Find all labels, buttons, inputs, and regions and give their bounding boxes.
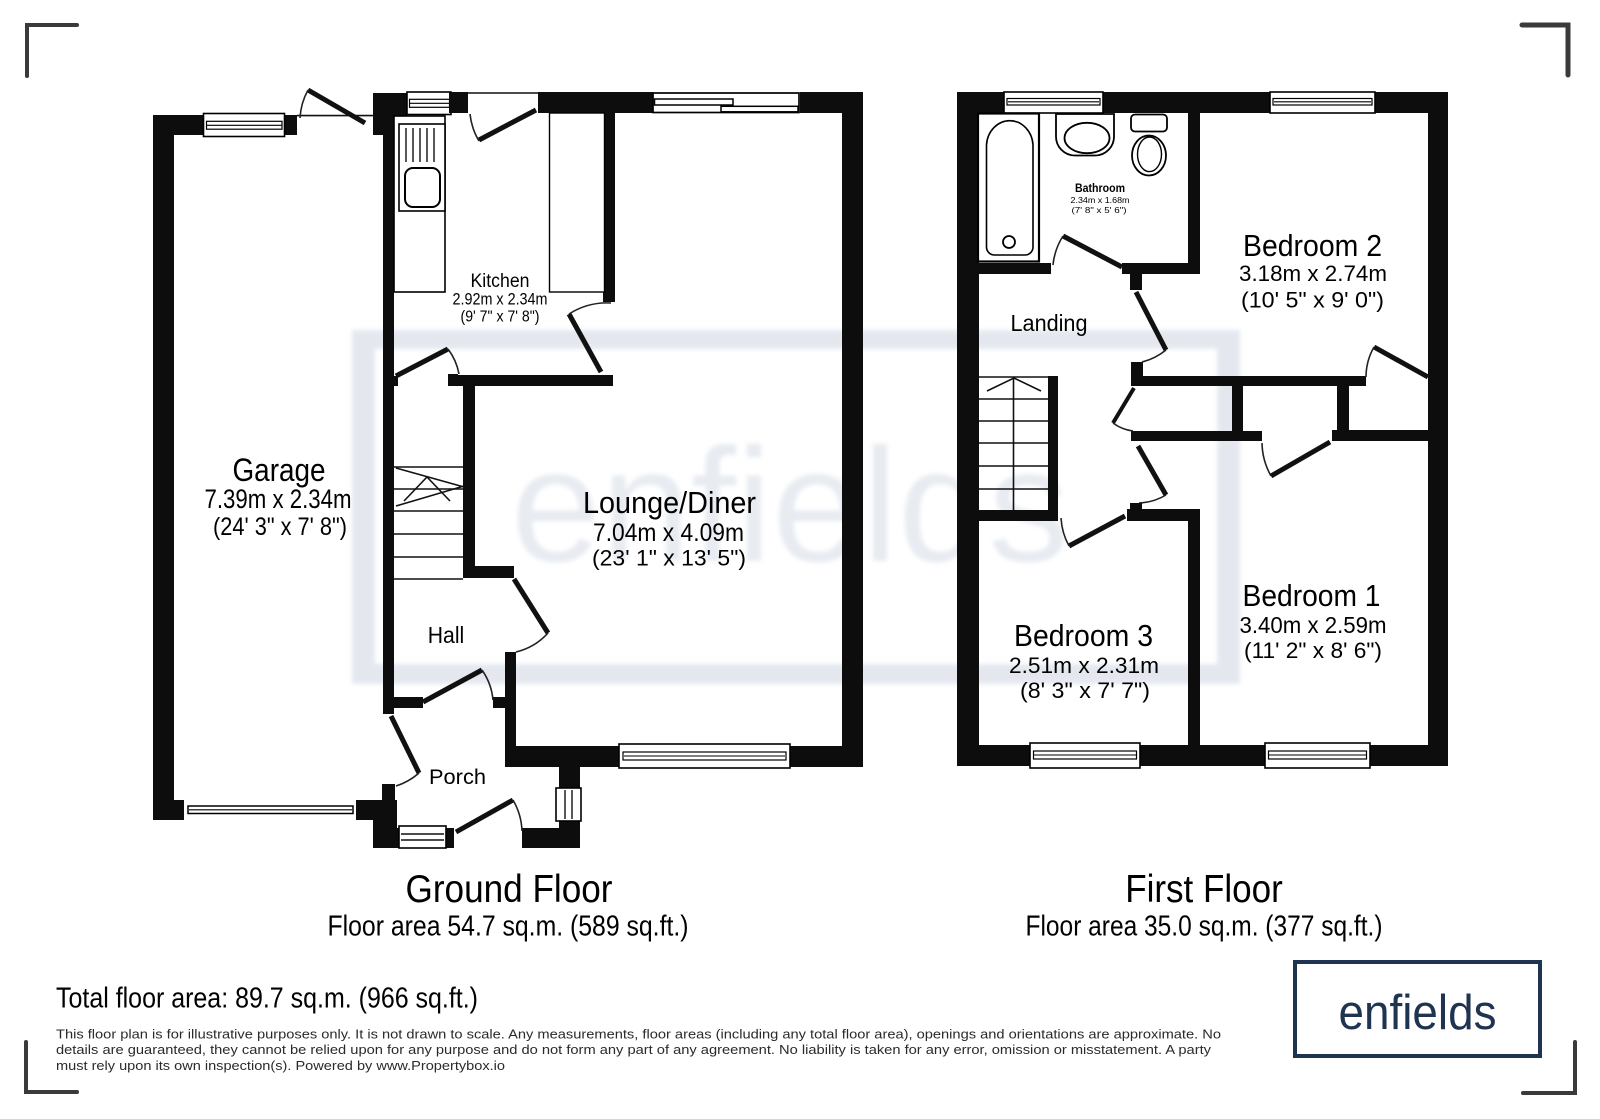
svg-text:Ground Floor: Ground Floor [406, 868, 613, 911]
svg-text:(10' 5" x 9' 0"): (10' 5" x 9' 0") [1241, 288, 1384, 313]
svg-text:2.34m x 1.68m: 2.34m x 1.68m [1071, 195, 1130, 205]
svg-text:2.92m x 2.34m: 2.92m x 2.34m [453, 290, 548, 309]
svg-text:Porch: Porch [429, 765, 486, 789]
svg-text:Bedroom 3: Bedroom 3 [1014, 618, 1153, 653]
svg-text:7.39m x 2.34m: 7.39m x 2.34m [205, 484, 352, 514]
svg-text:Hall: Hall [428, 622, 465, 648]
svg-text:This floor plan is for illustr: This floor plan is for illustrative purp… [56, 1027, 1221, 1042]
svg-text:details are guaranteed, they c: details are guaranteed, they cannot be r… [56, 1042, 1211, 1057]
svg-text:Floor area 54.7 sq.m. (589 sq.: Floor area 54.7 sq.m. (589 sq.ft.) [328, 911, 689, 943]
svg-text:(11' 2" x 8' 6"): (11' 2" x 8' 6") [1244, 638, 1382, 663]
svg-text:(9' 7" x 7' 8"): (9' 7" x 7' 8") [461, 309, 540, 326]
svg-text:Floor area 35.0 sq.m. (377 sq.: Floor area 35.0 sq.m. (377 sq.ft.) [1026, 911, 1383, 943]
svg-text:First Floor: First Floor [1125, 868, 1283, 911]
svg-text:(24' 3" x 7' 8"): (24' 3" x 7' 8") [213, 513, 347, 541]
svg-text:Garage: Garage [233, 452, 326, 488]
svg-text:(23' 1" x 13' 5"): (23' 1" x 13' 5") [592, 546, 746, 571]
svg-text:enfields: enfields [1339, 986, 1497, 1040]
svg-text:Landing: Landing [1011, 310, 1088, 336]
svg-text:3.18m x 2.74m: 3.18m x 2.74m [1239, 261, 1387, 286]
svg-text:7.04m x 4.09m: 7.04m x 4.09m [593, 519, 744, 547]
svg-text:(7' 8" x 5' 6"): (7' 8" x 5' 6") [1072, 205, 1127, 215]
svg-text:2.51m x 2.31m: 2.51m x 2.31m [1009, 653, 1159, 678]
svg-text:Bedroom 2: Bedroom 2 [1243, 228, 1382, 263]
svg-text:3.40m x 2.59m: 3.40m x 2.59m [1240, 612, 1387, 638]
svg-text:Total floor area: 89.7 sq.m. (: Total floor area: 89.7 sq.m. (966 sq.ft.… [56, 983, 478, 1015]
svg-text:must rely upon its own inspect: must rely upon its own inspection(s). Po… [56, 1058, 505, 1073]
svg-text:Lounge/Diner: Lounge/Diner [583, 485, 756, 520]
svg-text:Bathroom: Bathroom [1075, 181, 1125, 195]
svg-text:(8' 3" x 7' 7"): (8' 3" x 7' 7") [1020, 678, 1150, 703]
svg-text:Bedroom 1: Bedroom 1 [1243, 578, 1381, 613]
